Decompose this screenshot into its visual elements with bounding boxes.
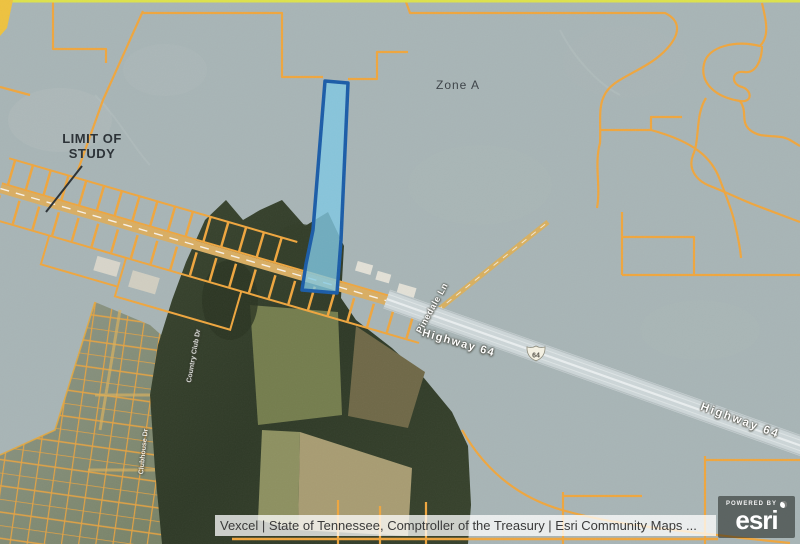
esri-logo[interactable]: POWERED BY esri [718, 496, 795, 538]
globe-icon [780, 501, 787, 508]
map-layers: 64 [0, 0, 800, 544]
map-canvas[interactable]: 64 LIMIT OF STUDY Zone A Highway 64 High… [0, 0, 800, 544]
esri-logotype: esri [718, 507, 795, 533]
imagery-grain [0, 0, 800, 544]
attribution-text: Vexcel | State of Tennessee, Comptroller… [220, 518, 697, 533]
attribution-bar: Vexcel | State of Tennessee, Comptroller… [215, 515, 716, 536]
